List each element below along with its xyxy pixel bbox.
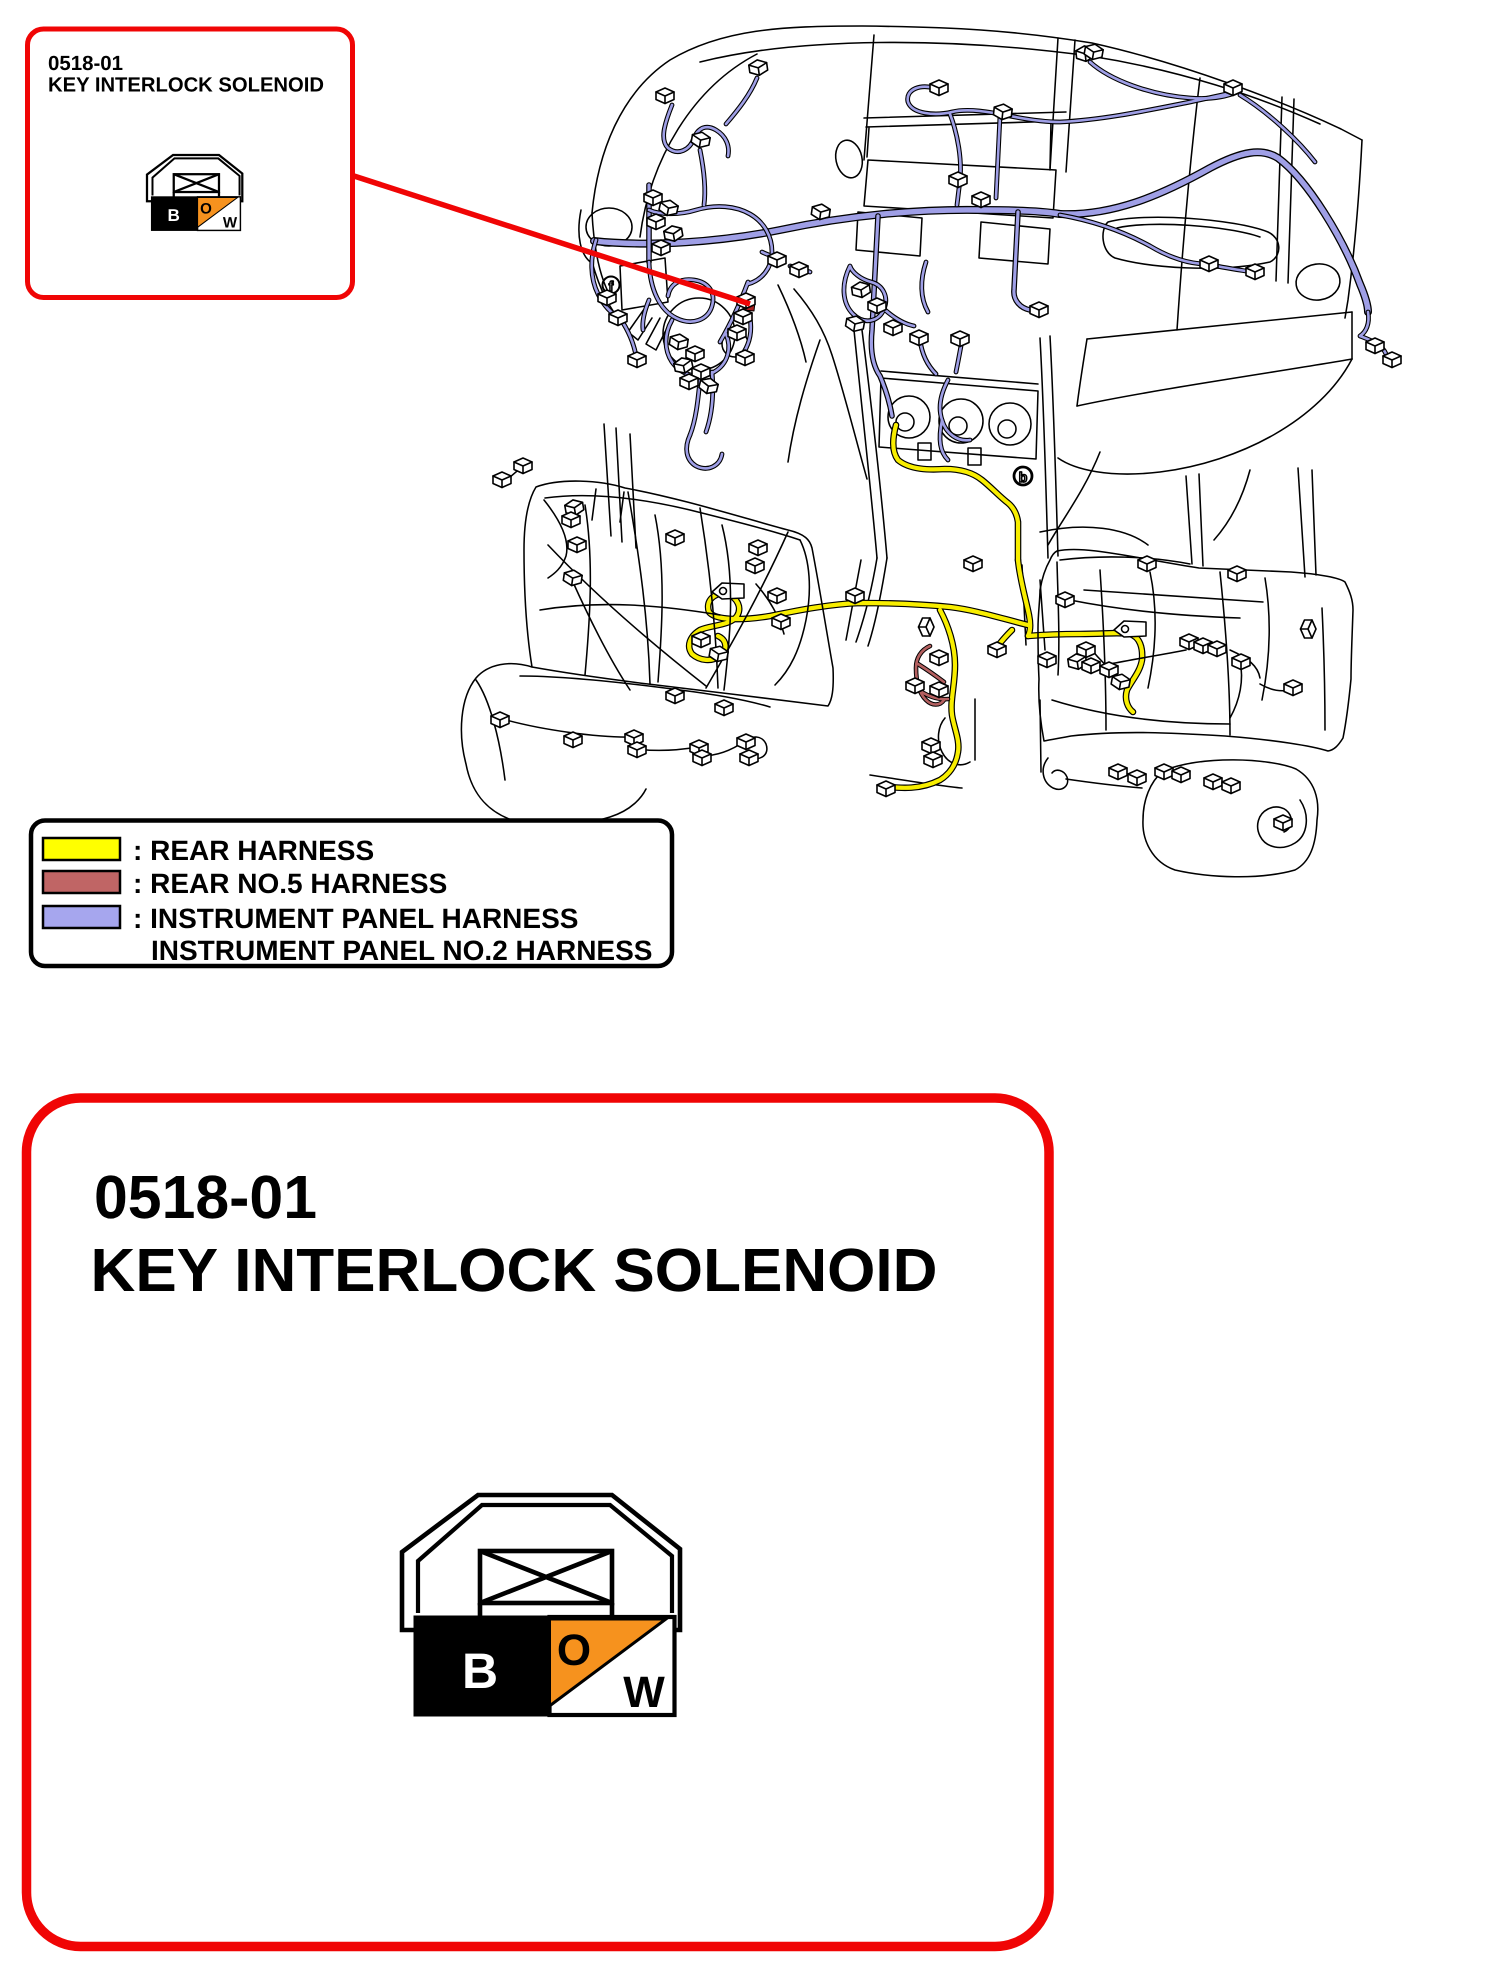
- svg-text:b: b: [1019, 469, 1028, 485]
- svg-text:INSTRUMENT PANEL NO.2 HARNESS: INSTRUMENT PANEL NO.2 HARNESS: [151, 935, 652, 966]
- svg-text:: REAR NO.5 HARNESS: : REAR NO.5 HARNESS: [133, 868, 447, 899]
- svg-text:: INSTRUMENT PANEL HARNESS: : INSTRUMENT PANEL HARNESS: [133, 903, 578, 934]
- svg-text:: REAR HARNESS: : REAR HARNESS: [133, 835, 374, 866]
- svg-text:0518-01: 0518-01: [94, 1163, 317, 1231]
- svg-text:KEY INTERLOCK SOLENOID: KEY INTERLOCK SOLENOID: [48, 74, 324, 97]
- svg-text:0518-01: 0518-01: [48, 52, 123, 75]
- svg-text:KEY INTERLOCK SOLENOID: KEY INTERLOCK SOLENOID: [91, 1236, 938, 1304]
